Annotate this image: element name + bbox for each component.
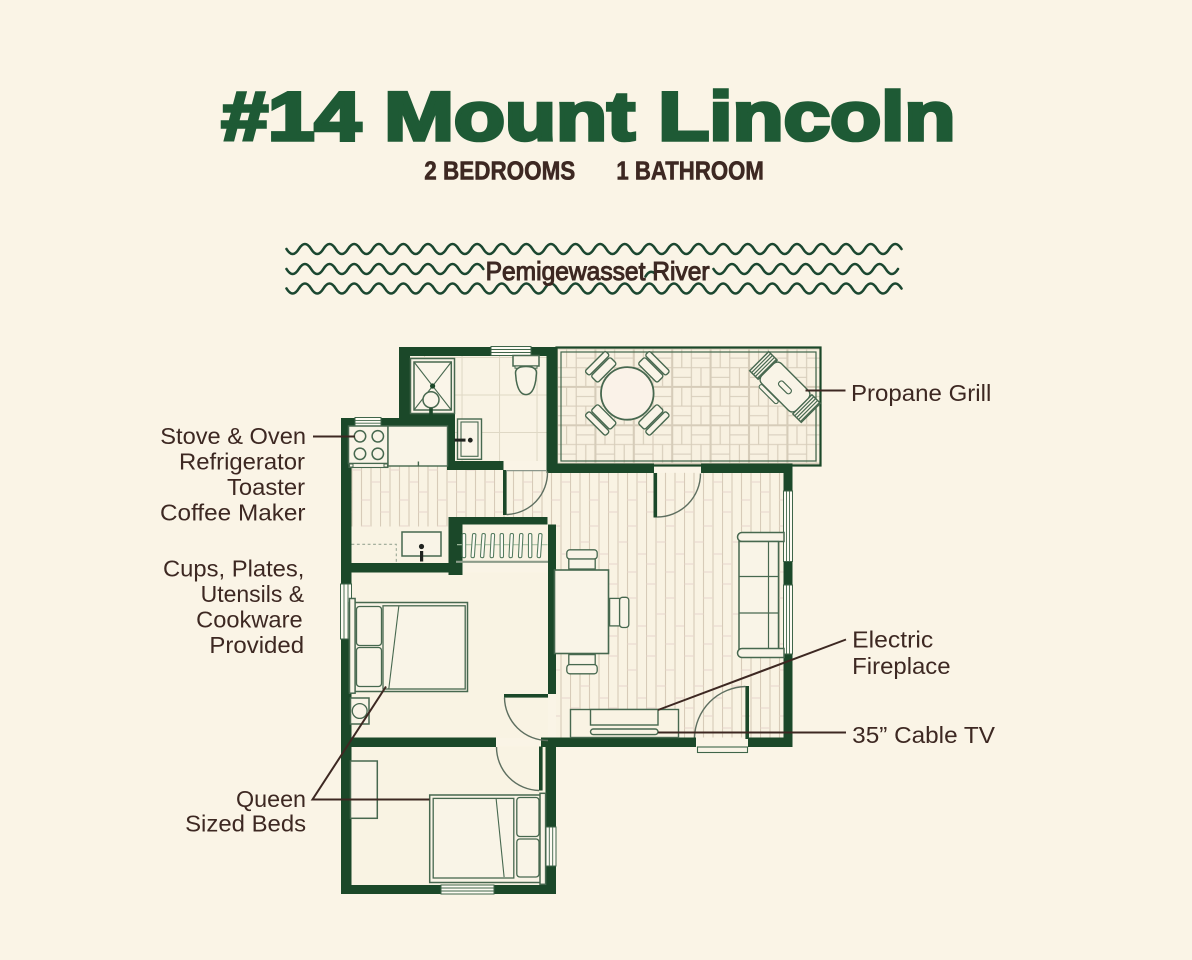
svg-text:Propane Grill: Propane Grill (851, 380, 991, 406)
svg-text:Pemigewasset River: Pemigewasset River (486, 256, 710, 286)
svg-text:Coffee Maker: Coffee Maker (160, 500, 306, 526)
svg-text:35” Cable TV: 35” Cable TV (852, 722, 995, 748)
svg-text:Electric: Electric (852, 627, 933, 653)
svg-text:Provided: Provided (209, 632, 304, 658)
svg-text:Cookware: Cookware (196, 607, 302, 633)
svg-text:Utensils &: Utensils & (201, 581, 305, 607)
svg-text:1 BATHROOM: 1 BATHROOM (616, 158, 763, 186)
svg-text:Refrigerator: Refrigerator (179, 449, 305, 475)
svg-text:Toaster: Toaster (227, 474, 305, 500)
svg-text:Cups, Plates,: Cups, Plates, (163, 556, 304, 582)
svg-text:Fireplace: Fireplace (852, 653, 950, 679)
svg-text:2 BEDROOMS: 2 BEDROOMS (424, 158, 575, 186)
svg-text:Sized Beds: Sized Beds (185, 811, 306, 837)
svg-text:#14 Mount Lincoln: #14 Mount Lincoln (222, 78, 956, 155)
svg-text:Stove & Oven: Stove & Oven (160, 423, 306, 449)
svg-text:Queen: Queen (236, 786, 306, 812)
